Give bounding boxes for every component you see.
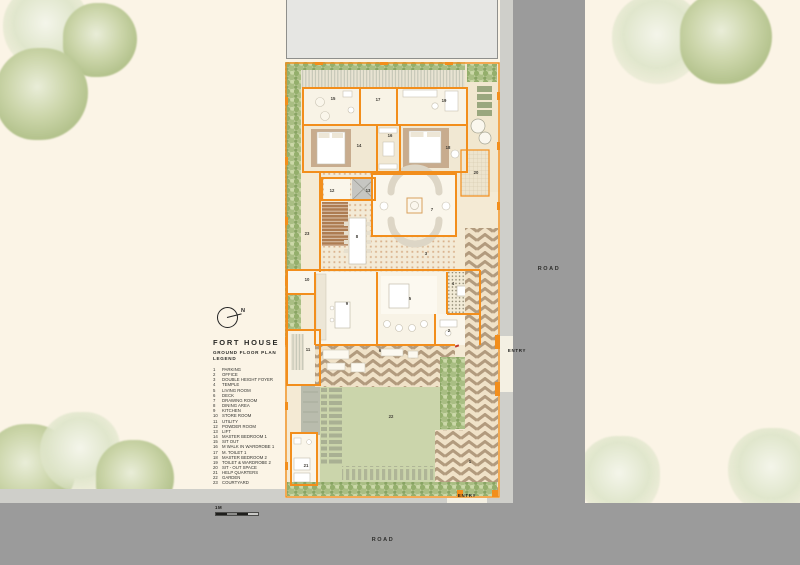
room-number-sitout-space: 20 xyxy=(474,170,479,175)
room-number-help-quarters: 21 xyxy=(304,463,309,468)
legend-item-number: 23 xyxy=(213,480,222,485)
room-number-garden: 22 xyxy=(389,414,394,419)
north-label: N xyxy=(241,308,245,314)
road-bottom xyxy=(0,503,800,565)
tree-icon xyxy=(728,428,800,514)
room-number-utility: 11 xyxy=(306,347,311,352)
legend-list: 1PARKING 2OFFICE 3DOUBLE HEIGHT FOYER 4T… xyxy=(213,367,303,486)
room-number-powder: 12 xyxy=(330,188,335,193)
road-right-label: ROAD xyxy=(528,266,570,272)
scale-label: 1M xyxy=(215,505,222,510)
legend-item-label: COURTYARD xyxy=(222,480,249,485)
site-plan-canvas: 1 2 3 4 5 6 7 8 9 10 11 12 13 14 15 16 1… xyxy=(0,0,800,565)
floor-plan: 1 2 3 4 5 6 7 8 9 10 11 12 13 14 15 16 1… xyxy=(285,62,500,498)
room-number-store: 10 xyxy=(305,277,310,282)
sidewalk-right xyxy=(500,0,513,503)
road-bottom-label: ROAD xyxy=(358,537,408,543)
entry-bottom-label: ENTRY xyxy=(447,493,487,498)
room-number-master2: 18 xyxy=(446,145,451,150)
tree-icon xyxy=(680,0,772,84)
room-number-toilet1: 17 xyxy=(376,97,381,102)
room-number-sitout: 15 xyxy=(331,96,336,101)
page-title: FORT HOUSE xyxy=(213,338,279,347)
tree-icon xyxy=(0,48,88,140)
scale-bar xyxy=(215,512,259,516)
room-number-courtyard: 23 xyxy=(305,231,310,236)
room-number-master1: 14 xyxy=(357,143,362,148)
room-number-toilet2: 19 xyxy=(442,98,447,103)
neighbour-building xyxy=(286,0,498,59)
entry-side-label: ENTRY xyxy=(502,348,532,353)
room-number-wardrobe1: 16 xyxy=(388,133,393,138)
legend-item: 23COURTYARD xyxy=(213,480,303,485)
road-right xyxy=(513,0,585,503)
legend-heading: LEGEND xyxy=(213,356,236,362)
room-number-lift: 13 xyxy=(366,188,371,193)
